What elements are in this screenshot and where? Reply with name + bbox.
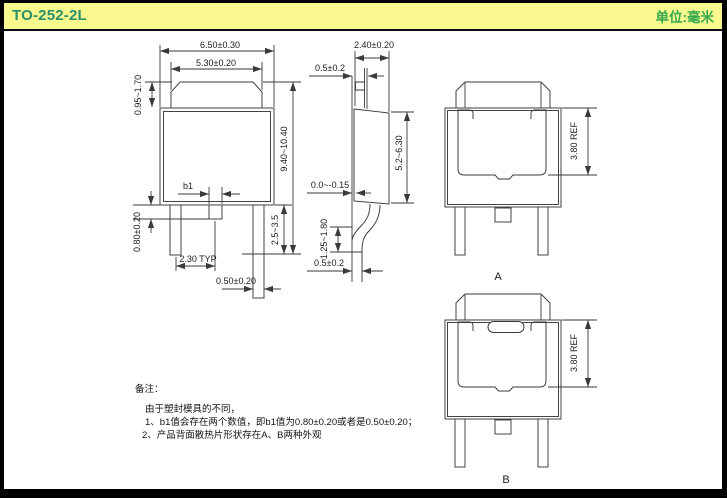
back-view-b: 3.80 REF B bbox=[445, 294, 597, 486]
view-b-label: B bbox=[502, 474, 509, 486]
dim-lead-foot-height: 1.25~1.80 bbox=[319, 219, 329, 259]
dim-mid-pin-label: b1 bbox=[183, 181, 193, 191]
dim-body-height: 5.2~6.30 bbox=[394, 135, 404, 170]
dim-pin-pitch: 2.30 TYP bbox=[179, 254, 216, 264]
dim-pad-height-b: 3.80 REF bbox=[569, 333, 579, 372]
back-b-leg-right bbox=[538, 419, 548, 467]
dim-standoff: 0.0~-0.15 bbox=[311, 180, 349, 190]
back-a-leg-left bbox=[455, 207, 465, 255]
view-a-label: A bbox=[494, 271, 502, 283]
dim-overall-width: 6.50±0.30 bbox=[200, 40, 240, 50]
notes-block: 备注： 由于塑封模具的不同， 1、b1值会存在两个数值，即b1值为0.80±0.… bbox=[135, 383, 465, 442]
dim-pad-height-a: 3.80 REF bbox=[569, 121, 579, 160]
front-body bbox=[160, 108, 274, 205]
front-tab bbox=[171, 82, 262, 108]
front-pin-middle bbox=[209, 205, 222, 219]
notes-item-1: 1、b1值会存在两个数值，即b1值为0.80±0.20或者是0.50±0.20； bbox=[145, 416, 465, 429]
back-b-slot bbox=[488, 322, 524, 333]
notes-item-2: 2、产品背面散热片形状存在A、B两种外观 bbox=[142, 429, 465, 442]
dim-tab-thickness: 0.5±0.2 bbox=[315, 63, 345, 73]
dim-mid-pin-length: 0.80±0.20 bbox=[132, 212, 142, 252]
dim-body-thickness: 2.40±0.20 bbox=[354, 40, 394, 50]
back-a-body bbox=[445, 108, 561, 207]
back-a-tab bbox=[456, 82, 550, 108]
front-pin-left bbox=[170, 205, 181, 255]
dim-tab-height: 0.95~1.70 bbox=[133, 75, 143, 115]
front-view: 6.50±0.30 5.30±0.20 0.95~1.70 9.40~10.40… bbox=[132, 40, 301, 298]
sheet-header: TO-252-2L 单位:毫米 bbox=[3, 2, 723, 31]
package-outline-sheet: TO-252-2L 单位:毫米 6.50±0.30 bbox=[0, 0, 727, 498]
dim-pin-length: 2.5~3.5 bbox=[270, 215, 280, 245]
side-lead bbox=[352, 204, 370, 241]
notes-heading: 备注： bbox=[135, 383, 465, 396]
page-title: TO-252-2L bbox=[12, 7, 87, 24]
back-view-a: 3.80 REF A bbox=[445, 82, 597, 283]
dim-total-height: 9.40~10.40 bbox=[279, 126, 289, 171]
dim-pin-width: 0.50±0.20 bbox=[216, 276, 256, 286]
notes-intro: 由于塑封模具的不同， bbox=[145, 403, 465, 416]
side-body bbox=[354, 109, 389, 204]
side-view: 2.40±0.20 0.5±0.2 5.2~6.30 0.0~-0.15 1.2… bbox=[307, 40, 414, 282]
back-a-leg-right bbox=[538, 207, 548, 255]
dim-tab-width: 5.30±0.20 bbox=[196, 58, 236, 68]
dim-lead-thickness: 0.5±0.2 bbox=[314, 258, 344, 268]
back-b-tab bbox=[456, 294, 550, 320]
back-b-middle-stub bbox=[495, 420, 511, 434]
unit-label: 单位:毫米 bbox=[656, 6, 715, 26]
back-a-middle-stub bbox=[495, 208, 511, 222]
